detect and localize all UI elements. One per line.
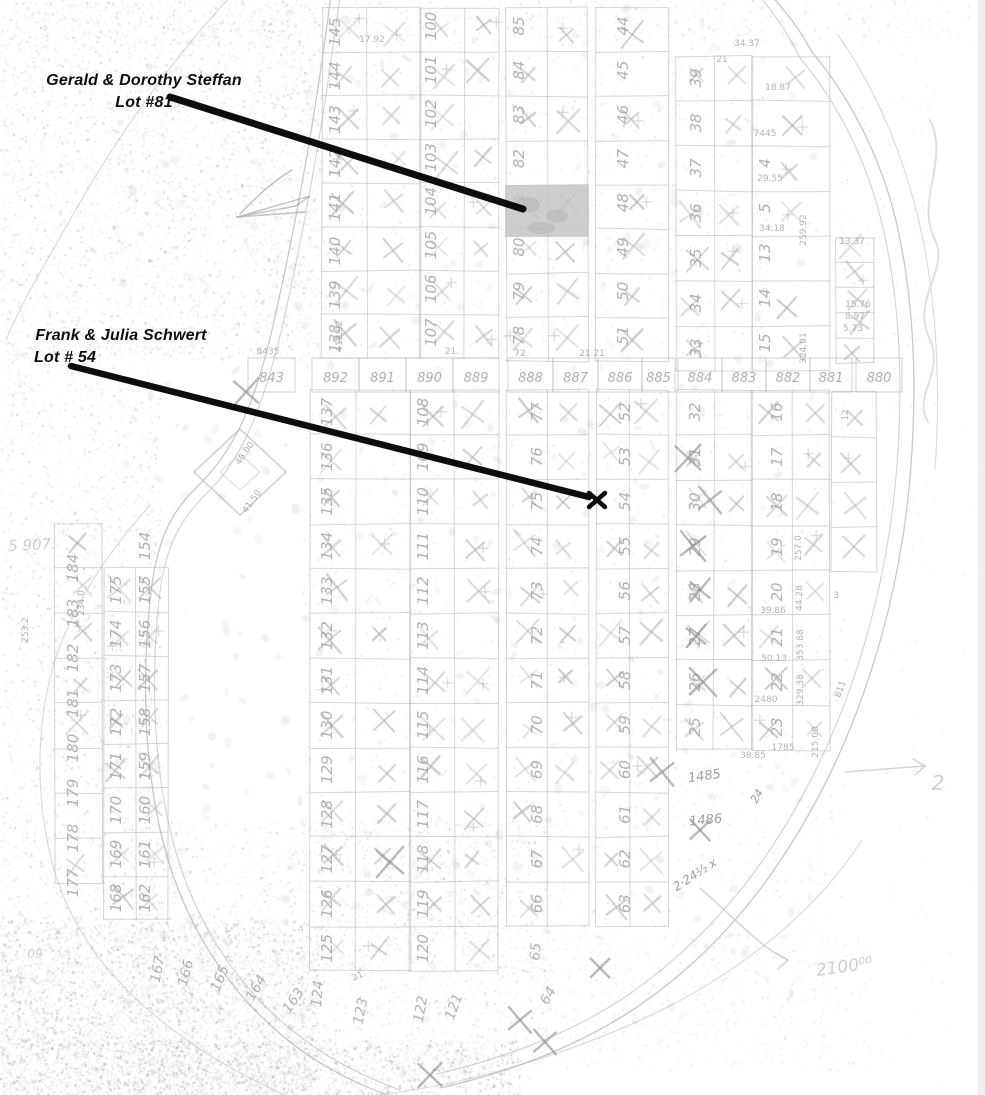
schwert-lot-number: Lot # 54: [16, 347, 226, 369]
scan-edge-shadow: [978, 0, 985, 1095]
steffan-owner-name: Gerald & Dorothy Steffan: [28, 70, 260, 92]
schwert-owner-label: Frank & Julia Schwert Lot # 54: [16, 325, 226, 369]
highlight-smudge: [546, 209, 568, 223]
steffan-owner-label: Gerald & Dorothy Steffan Lot #81: [28, 70, 260, 114]
highlight-smudge: [527, 222, 555, 234]
lot-54-x-marker: [589, 493, 605, 507]
schwert-pointer-line: [71, 366, 589, 497]
annotation-overlay: [0, 0, 985, 1095]
lot-81-highlight: [505, 185, 589, 237]
steffan-lot-number: Lot #81: [28, 92, 260, 114]
scanned-plat-map-page: 8438928918908898888878868858848838828818…: [0, 0, 985, 1095]
schwert-owner-name: Frank & Julia Schwert: [16, 325, 226, 347]
